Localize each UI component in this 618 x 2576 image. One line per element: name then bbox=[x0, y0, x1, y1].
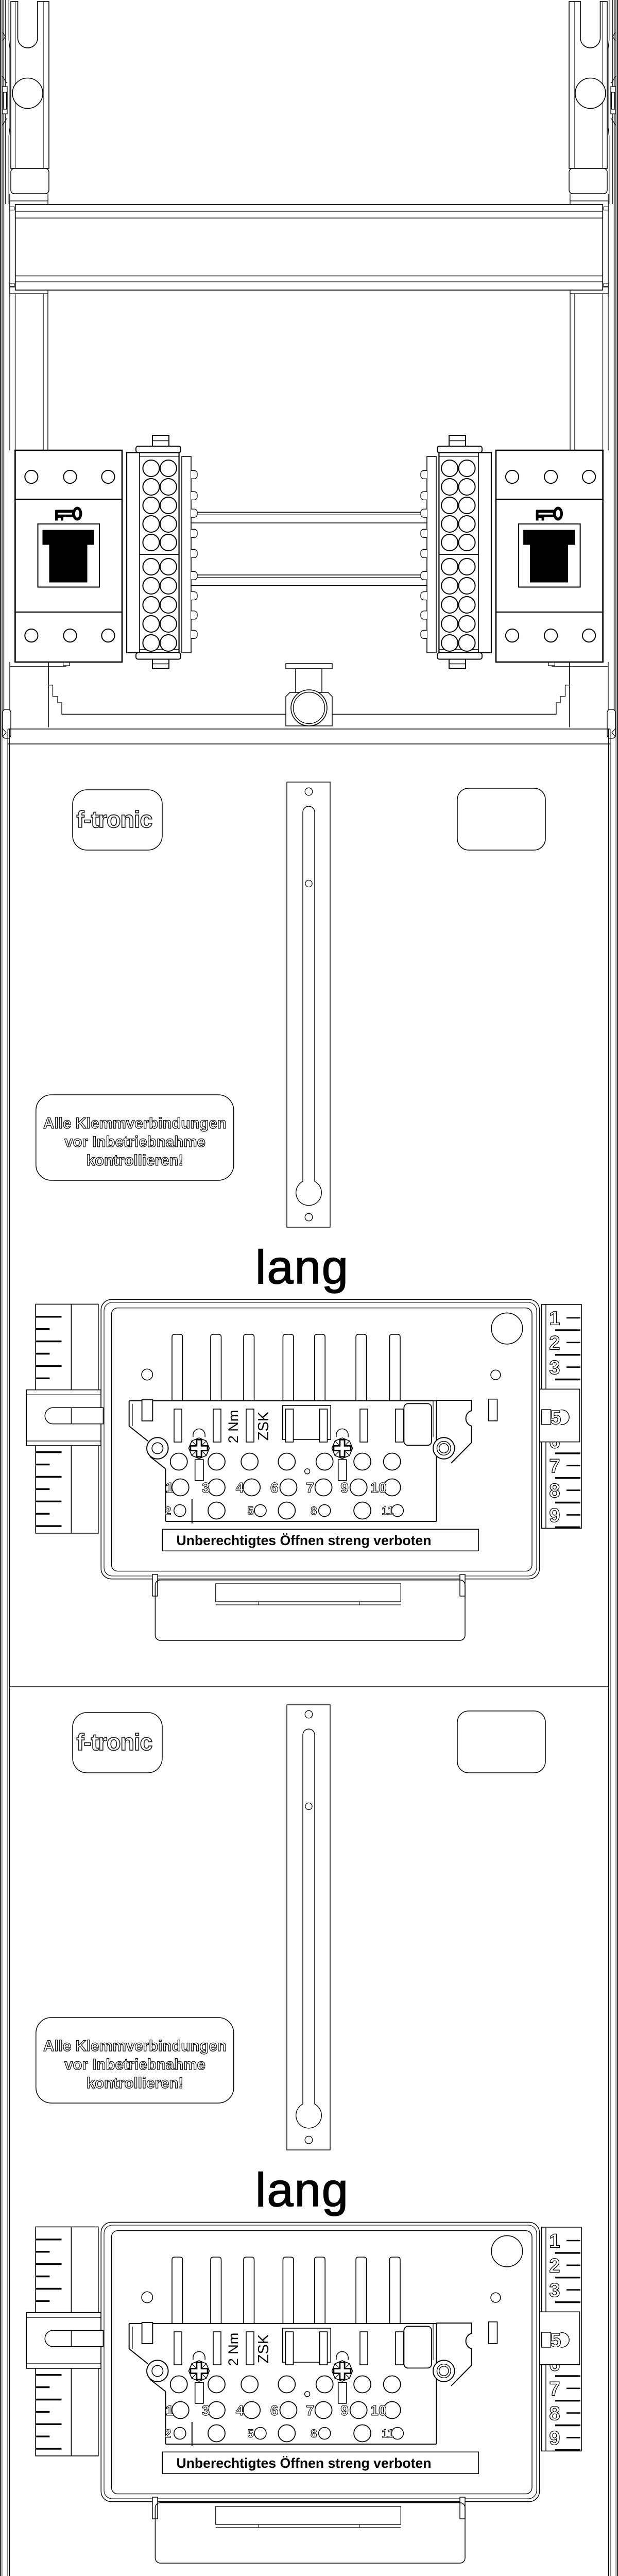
svg-text:vor Inbetriebnahme: vor Inbetriebnahme bbox=[64, 2056, 205, 2073]
svg-text:8: 8 bbox=[311, 1504, 317, 1517]
svg-text:9: 9 bbox=[549, 2428, 560, 2449]
svg-text:lang: lang bbox=[255, 2164, 349, 2216]
svg-text:2: 2 bbox=[165, 2427, 171, 2440]
svg-text:Unberechtigtes Öffnen streng v: Unberechtigtes Öffnen streng verboten bbox=[176, 2455, 431, 2471]
svg-text:9: 9 bbox=[340, 2402, 349, 2418]
svg-text:1: 1 bbox=[549, 1308, 560, 1330]
svg-text:10: 10 bbox=[370, 1480, 386, 1496]
svg-text:3: 3 bbox=[202, 2402, 210, 2418]
svg-text:5: 5 bbox=[247, 1504, 253, 1517]
svg-text:kontrollieren!: kontrollieren! bbox=[87, 2075, 184, 2092]
svg-text:2: 2 bbox=[549, 1332, 560, 1354]
svg-text:4: 4 bbox=[236, 1480, 244, 1496]
svg-text:7: 7 bbox=[306, 2402, 314, 2418]
svg-text:4: 4 bbox=[236, 2402, 244, 2418]
svg-text:ZSK: ZSK bbox=[255, 1411, 272, 1440]
svg-text:f-tronic: f-tronic bbox=[77, 1729, 152, 1755]
svg-text:kontrollieren!: kontrollieren! bbox=[87, 1152, 184, 1169]
svg-text:Unberechtigtes Öffnen streng v: Unberechtigtes Öffnen streng verboten bbox=[176, 1533, 431, 1548]
svg-text:8: 8 bbox=[549, 1480, 560, 1502]
svg-text:10: 10 bbox=[370, 2402, 386, 2418]
svg-text:8: 8 bbox=[549, 2403, 560, 2425]
svg-text:1: 1 bbox=[166, 2402, 174, 2418]
svg-text:11: 11 bbox=[382, 2427, 393, 2440]
svg-text:5: 5 bbox=[550, 1407, 561, 1429]
svg-text:1: 1 bbox=[166, 1480, 174, 1496]
svg-text:9: 9 bbox=[549, 1505, 560, 1527]
svg-text:6: 6 bbox=[270, 2402, 279, 2418]
svg-text:6: 6 bbox=[270, 1480, 279, 1496]
svg-text:2 Nm: 2 Nm bbox=[226, 2333, 241, 2366]
svg-text:3: 3 bbox=[549, 1357, 560, 1379]
svg-text:2: 2 bbox=[165, 1504, 171, 1517]
svg-text:f-tronic: f-tronic bbox=[77, 806, 152, 833]
svg-text:Alle Klemmverbindungen: Alle Klemmverbindungen bbox=[43, 2038, 227, 2055]
svg-text:7: 7 bbox=[549, 1455, 560, 1477]
svg-text:7: 7 bbox=[549, 2378, 560, 2400]
svg-text:7: 7 bbox=[306, 1480, 314, 1496]
svg-text:vor Inbetriebnahme: vor Inbetriebnahme bbox=[64, 1133, 205, 1150]
svg-text:1: 1 bbox=[549, 2231, 560, 2252]
svg-text:3: 3 bbox=[202, 1480, 210, 1496]
svg-text:11: 11 bbox=[382, 1504, 393, 1517]
svg-text:3: 3 bbox=[549, 2280, 560, 2301]
svg-text:5: 5 bbox=[550, 2330, 561, 2351]
svg-text:ZSK: ZSK bbox=[255, 2334, 272, 2363]
svg-text:2 Nm: 2 Nm bbox=[226, 1410, 241, 1444]
svg-text:2: 2 bbox=[549, 2255, 560, 2277]
svg-text:8: 8 bbox=[311, 2427, 317, 2440]
svg-text:Alle Klemmverbindungen: Alle Klemmverbindungen bbox=[43, 1115, 227, 1132]
svg-text:lang: lang bbox=[255, 1241, 349, 1294]
svg-text:9: 9 bbox=[340, 1480, 349, 1496]
svg-text:5: 5 bbox=[247, 2427, 253, 2440]
